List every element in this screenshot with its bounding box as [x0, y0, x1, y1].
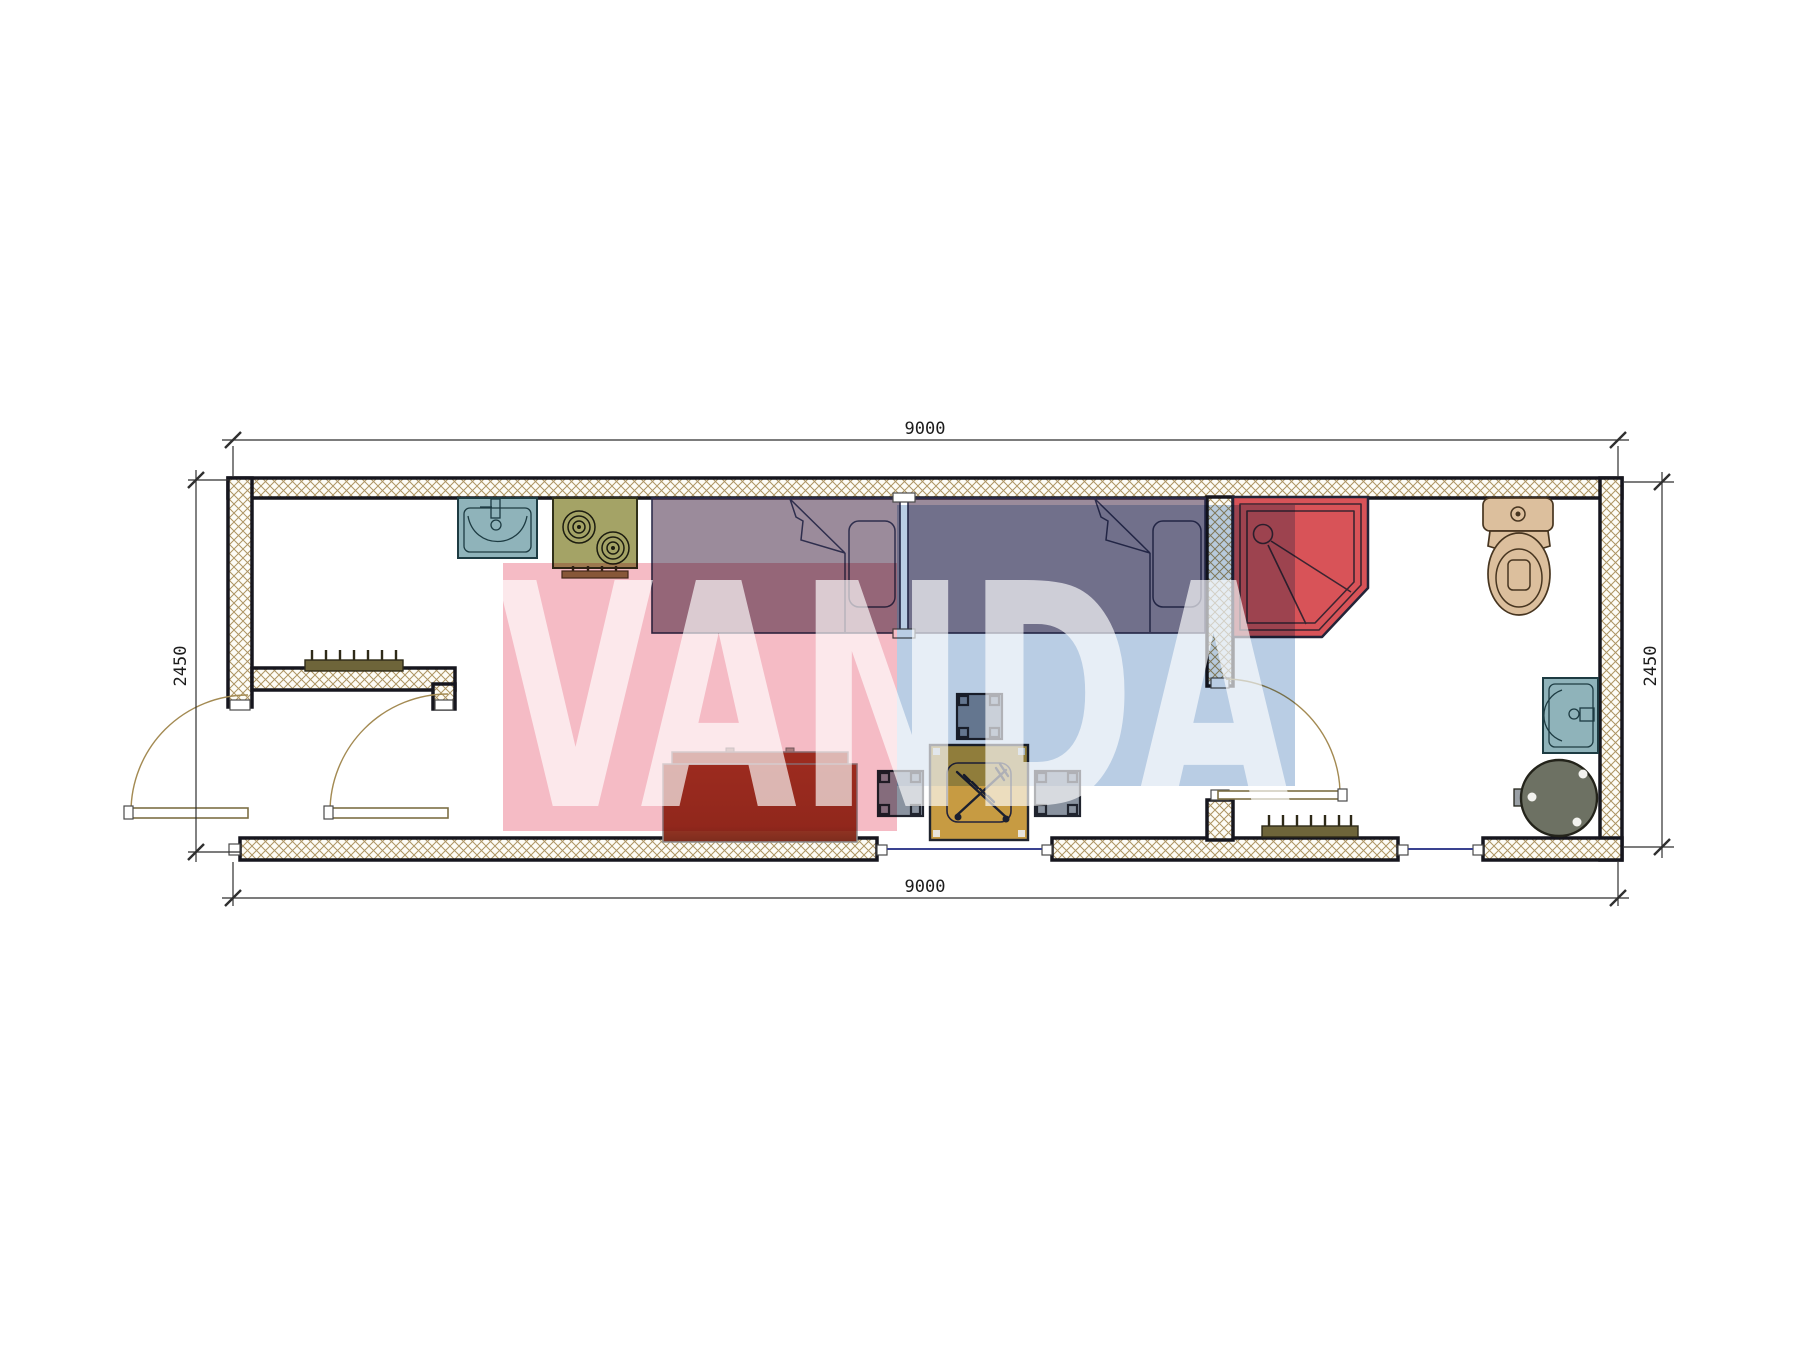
jamb-cap: [230, 700, 250, 710]
wall-right: [1600, 478, 1622, 860]
wall-left: [228, 478, 252, 707]
dim-label-top: 9000: [905, 419, 946, 439]
floor-plan-drawing: VANDA 9000 9000 2450 2450: [0, 0, 1800, 1350]
water-heater-bolt: [1528, 793, 1537, 802]
jamb-tab: [1398, 845, 1408, 855]
jamb-cap: [435, 700, 453, 710]
bed-gap-cap: [893, 493, 915, 502]
toilet: [1483, 498, 1553, 615]
door-end-cap: [1338, 789, 1347, 801]
water-heater: [1514, 760, 1597, 836]
dim-label-left: 2450: [171, 646, 191, 687]
dim-label-right: 2450: [1641, 646, 1661, 687]
washbasin-body: [1543, 678, 1598, 753]
dim-label-bottom: 9000: [905, 877, 946, 897]
toilet-bowl: [1488, 533, 1550, 615]
radiator-vestibule: [305, 650, 403, 671]
vestibule-door: [324, 694, 448, 819]
vestibule-door-swing-arc: [330, 694, 448, 812]
jamb-tab: [1473, 845, 1483, 855]
watermark-text: VANDA: [497, 519, 1293, 880]
water-heater-bolt: [1573, 818, 1582, 827]
floor-plan-canvas: VANDA 9000 9000 2450 2450: [0, 0, 1800, 1350]
door-end-cap: [324, 806, 333, 819]
door-end-cap: [124, 806, 133, 819]
wall-top: [228, 478, 1622, 498]
entry-door-swing-arc: [131, 695, 248, 812]
toilet-flush-button-dot: [1516, 512, 1521, 517]
radiator-bar: [305, 660, 403, 671]
jamb-tab: [229, 844, 240, 855]
wall-bottom-right-segment: [1483, 838, 1622, 860]
vestibule-door-leaf: [328, 808, 448, 818]
entry-door: [124, 695, 248, 819]
entry-door-leaf: [128, 808, 248, 818]
water-heater-bolt: [1579, 770, 1588, 779]
watermark: VANDA: [497, 505, 1295, 880]
washbasin: [1543, 678, 1598, 753]
